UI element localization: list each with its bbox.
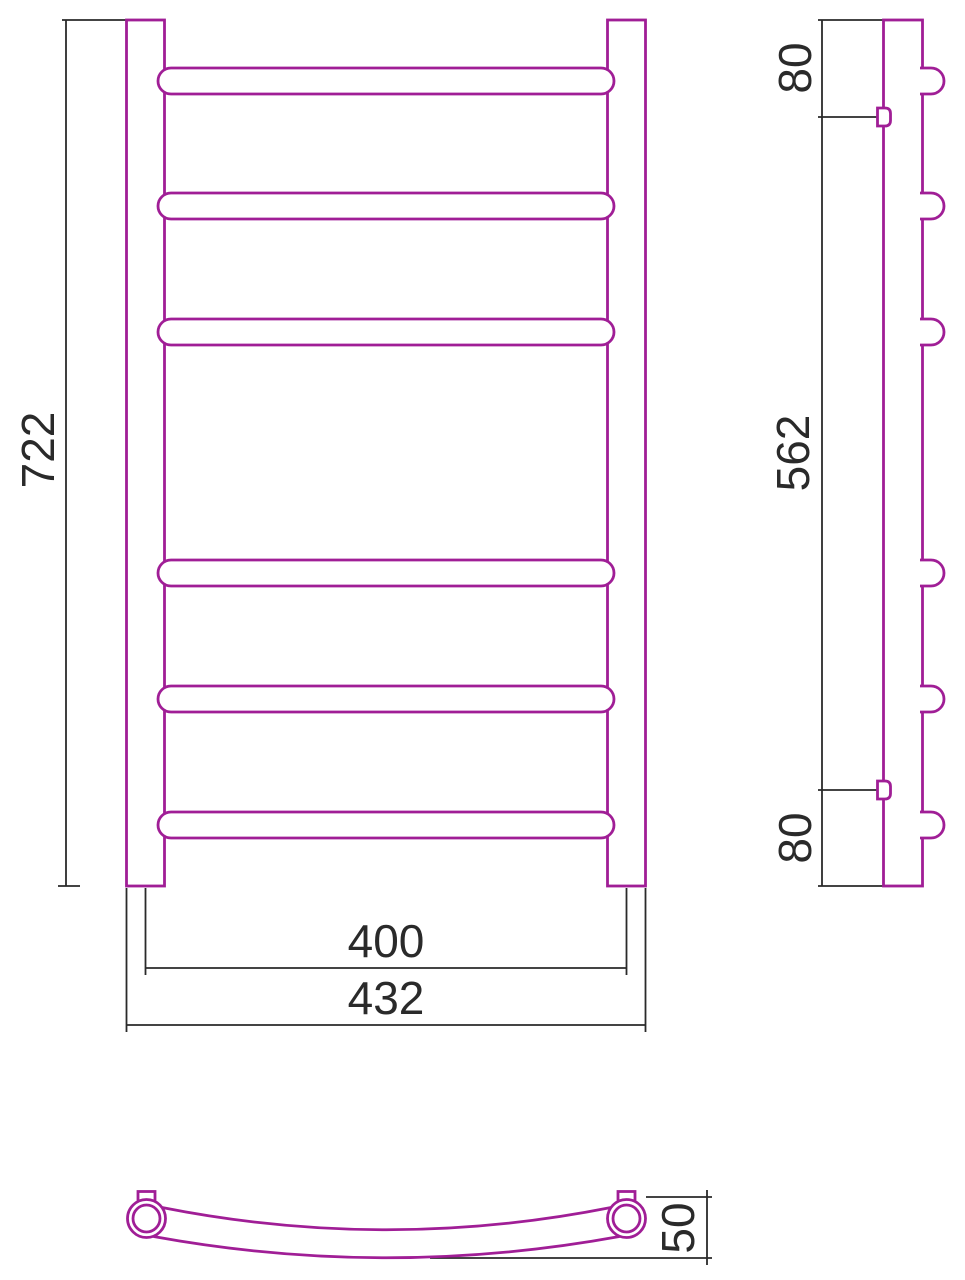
front-bar: [158, 319, 614, 345]
side-bar-end: [920, 193, 944, 219]
dimension-label-plan-depth: 50: [652, 1202, 704, 1253]
front-bar: [158, 812, 614, 838]
dimension-label-overall-width: 432: [348, 972, 425, 1024]
side-view: [878, 20, 945, 886]
dimension-label-side-bracket-span: 562: [767, 415, 819, 492]
dimension-label-front-height: 722: [12, 412, 64, 489]
side-wall-bracket: [878, 781, 891, 799]
side-bar-end: [920, 560, 944, 586]
side-bar-end: [920, 68, 944, 94]
front-left-post: [127, 20, 165, 886]
dimension-label-side-top-offset: 80: [769, 42, 821, 93]
front-right-post: [608, 20, 646, 886]
dimension-label-bar-center-width: 400: [348, 915, 425, 967]
technical-drawing-page: 722 80 562 80 400 432: [0, 0, 965, 1280]
front-bar: [158, 193, 614, 219]
side-wall-bracket: [878, 108, 891, 126]
front-bar: [158, 68, 614, 94]
front-bar: [158, 686, 614, 712]
towel-rail-technical-drawing: 722 80 562 80 400 432: [0, 0, 965, 1280]
dimension-label-side-bottom-offset: 80: [769, 812, 821, 863]
front-view: [127, 20, 646, 886]
side-post: [884, 20, 923, 886]
front-height-dimension: 722: [12, 20, 126, 886]
front-width-dimensions: 400 432: [127, 888, 646, 1032]
side-bar-end: [920, 812, 944, 838]
plan-view: [128, 1192, 646, 1258]
side-bar-end: [920, 686, 944, 712]
side-bar-end: [920, 319, 944, 345]
front-bar: [158, 560, 614, 586]
plan-bar-curve-front: [154, 1237, 620, 1258]
side-dimension: 80 562 80: [767, 20, 883, 886]
plan-bar-curve-back: [162, 1208, 611, 1230]
